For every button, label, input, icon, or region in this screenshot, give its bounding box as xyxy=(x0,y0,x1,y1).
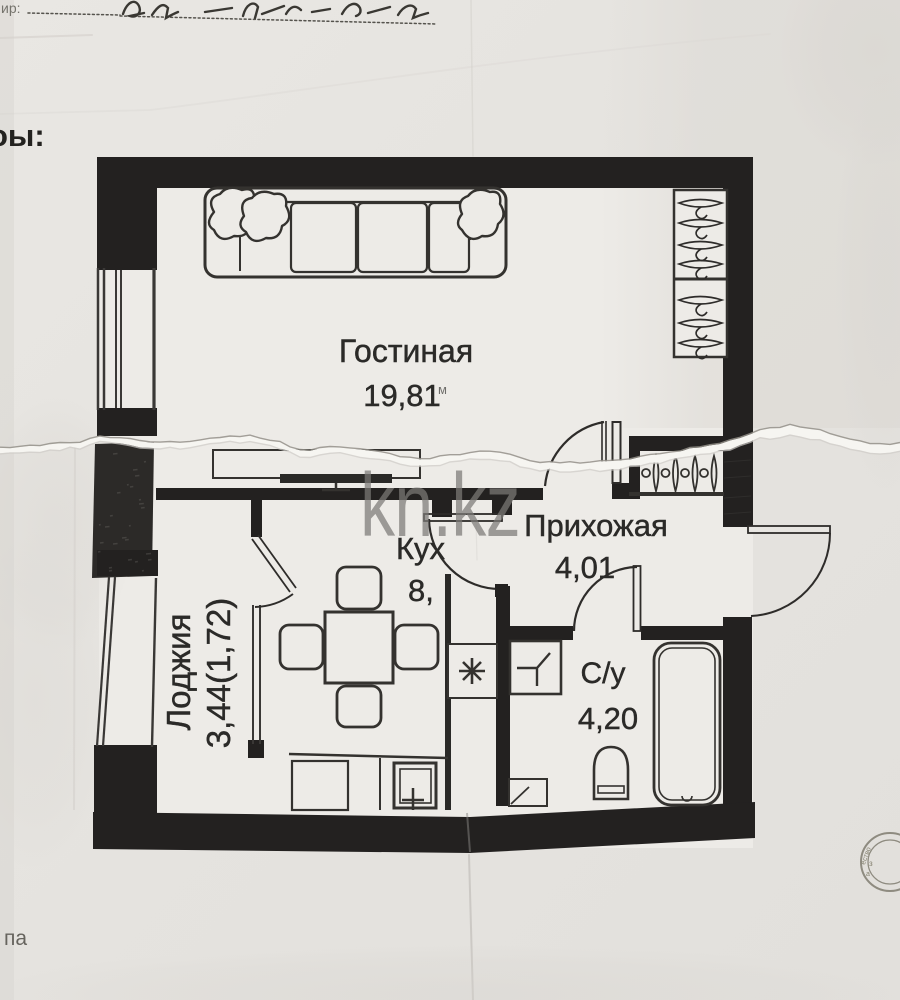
svg-text:Гостиная: Гостиная xyxy=(339,333,473,369)
svg-text:С/у: С/у xyxy=(581,657,626,690)
svg-text:4,20: 4,20 xyxy=(578,701,638,736)
svg-text:Прихожая: Прихожая xyxy=(524,508,668,543)
svg-text:па: па xyxy=(4,927,27,950)
svg-text:8,: 8, xyxy=(408,573,434,608)
svg-text:kn.kz: kn.kz xyxy=(360,456,520,556)
svg-text:з: з xyxy=(869,859,873,868)
svg-text:ир:: ир: xyxy=(1,0,21,16)
svg-text:Лоджия: Лоджия xyxy=(160,614,197,731)
svg-text:4,01: 4,01 xyxy=(555,550,615,585)
svg-text:оы:: оы: xyxy=(0,118,45,153)
svg-text:19,81: 19,81 xyxy=(363,378,441,413)
svg-text:а: а xyxy=(866,871,870,878)
svg-text:м: м xyxy=(438,382,447,397)
svg-text:3,44(1,72): 3,44(1,72) xyxy=(200,598,237,748)
